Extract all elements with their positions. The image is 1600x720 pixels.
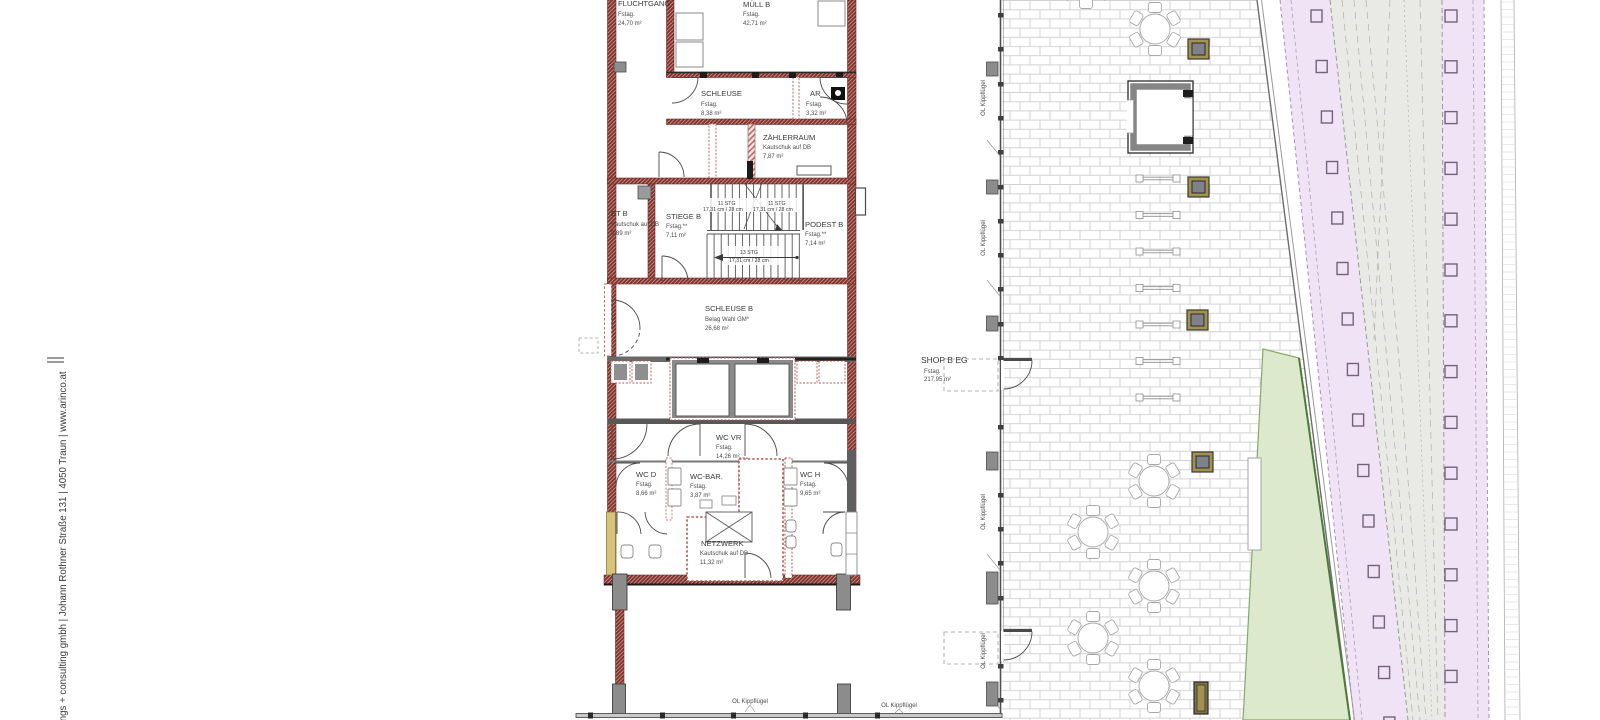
svg-text:Fstag.: Fstag. — [618, 12, 635, 18]
svg-text:3,32 m²: 3,32 m² — [806, 111, 826, 117]
svg-text:8,66 m²: 8,66 m² — [636, 491, 656, 497]
svg-text:OL Kippflügel: OL Kippflügel — [981, 220, 987, 256]
svg-text:PODEST B: PODEST B — [805, 220, 843, 229]
svg-text:OL Kippflügel: OL Kippflügel — [981, 494, 987, 530]
svg-text:OL Kippflügel: OL Kippflügel — [981, 80, 987, 116]
svg-text:WC VR: WC VR — [716, 433, 742, 442]
svg-text:Fstag.**: Fstag.** — [805, 232, 827, 238]
svg-text:WC H: WC H — [800, 470, 820, 479]
svg-text:OL Kippflügel: OL Kippflügel — [732, 699, 768, 705]
svg-text:ET B: ET B — [611, 209, 628, 218]
svg-text:Kautschuk auf DB: Kautschuk auf DB — [700, 551, 748, 557]
svg-text:STIEGE B: STIEGE B — [666, 212, 701, 221]
svg-text:Belag Wahl GM*: Belag Wahl GM* — [705, 317, 750, 323]
svg-text:nungs + consulting gmbh | Joha: nungs + consulting gmbh | Johann Rothner… — [58, 371, 69, 720]
svg-text:WC D: WC D — [636, 470, 657, 479]
svg-text:26,68 m²: 26,68 m² — [705, 326, 729, 332]
svg-text:Kautschuk auf DB: Kautschuk auf DB — [763, 145, 811, 151]
svg-text:OL Kippflügel: OL Kippflügel — [881, 703, 917, 709]
svg-text:Kautschuk auf DB: Kautschuk auf DB — [611, 222, 659, 228]
svg-text:13 STG: 13 STG — [740, 250, 758, 256]
svg-text:FLUCHTGANG: FLUCHTGANG — [618, 0, 670, 8]
svg-text:AR: AR — [810, 89, 821, 98]
svg-text:Fstag.: Fstag. — [743, 12, 760, 18]
svg-text:Fstag.: Fstag. — [636, 482, 653, 488]
svg-text:Fstag.: Fstag. — [701, 102, 718, 108]
svg-text:Fstag.: Fstag. — [690, 484, 707, 490]
svg-text:NETZWERK: NETZWERK — [701, 539, 744, 548]
svg-text:3,87 m²: 3,87 m² — [690, 493, 710, 499]
svg-text:17,31 cm / 28 cm: 17,31 cm / 28 cm — [729, 258, 769, 264]
svg-text:17,31 cm / 28 cm: 17,31 cm / 28 cm — [753, 207, 793, 213]
svg-text:17,31 cm / 28 cm: 17,31 cm / 28 cm — [703, 207, 743, 213]
svg-text:SCHLEUSE B: SCHLEUSE B — [705, 304, 753, 313]
svg-text:OL Kippflügel: OL Kippflügel — [981, 633, 987, 669]
svg-text:SHOP B EG: SHOP B EG — [921, 355, 968, 365]
svg-text:WC-BAR.: WC-BAR. — [690, 472, 723, 481]
svg-text:7,14 m²: 7,14 m² — [805, 241, 825, 247]
svg-text:Fstag.: Fstag. — [924, 369, 941, 375]
svg-text:9,65 m²: 9,65 m² — [800, 491, 820, 497]
svg-text:24,70 m²: 24,70 m² — [618, 21, 642, 27]
svg-text:Fstag.: Fstag. — [716, 445, 733, 451]
svg-text:7,87 m²: 7,87 m² — [763, 154, 783, 160]
svg-text:Fstag.**: Fstag.** — [666, 224, 688, 230]
svg-text:Fstag.: Fstag. — [806, 102, 823, 108]
svg-text:8,38 m²: 8,38 m² — [701, 111, 721, 117]
svg-text:14,26 m²: 14,26 m² — [716, 454, 740, 460]
svg-text:Fstag.: Fstag. — [800, 482, 817, 488]
svg-text:7,11 m²: 7,11 m² — [666, 233, 686, 239]
svg-text:217,95 m²: 217,95 m² — [924, 377, 951, 383]
svg-text:11,32 m²: 11,32 m² — [700, 560, 723, 566]
svg-text:42,71 m²: 42,71 m² — [743, 21, 767, 27]
svg-text:MÜLL B: MÜLL B — [743, 0, 770, 9]
svg-text:ZÄHLERRAUM: ZÄHLERRAUM — [763, 133, 815, 142]
svg-text:SCHLEUSE: SCHLEUSE — [701, 89, 742, 98]
svg-text:5,89 m²: 5,89 m² — [611, 231, 631, 237]
